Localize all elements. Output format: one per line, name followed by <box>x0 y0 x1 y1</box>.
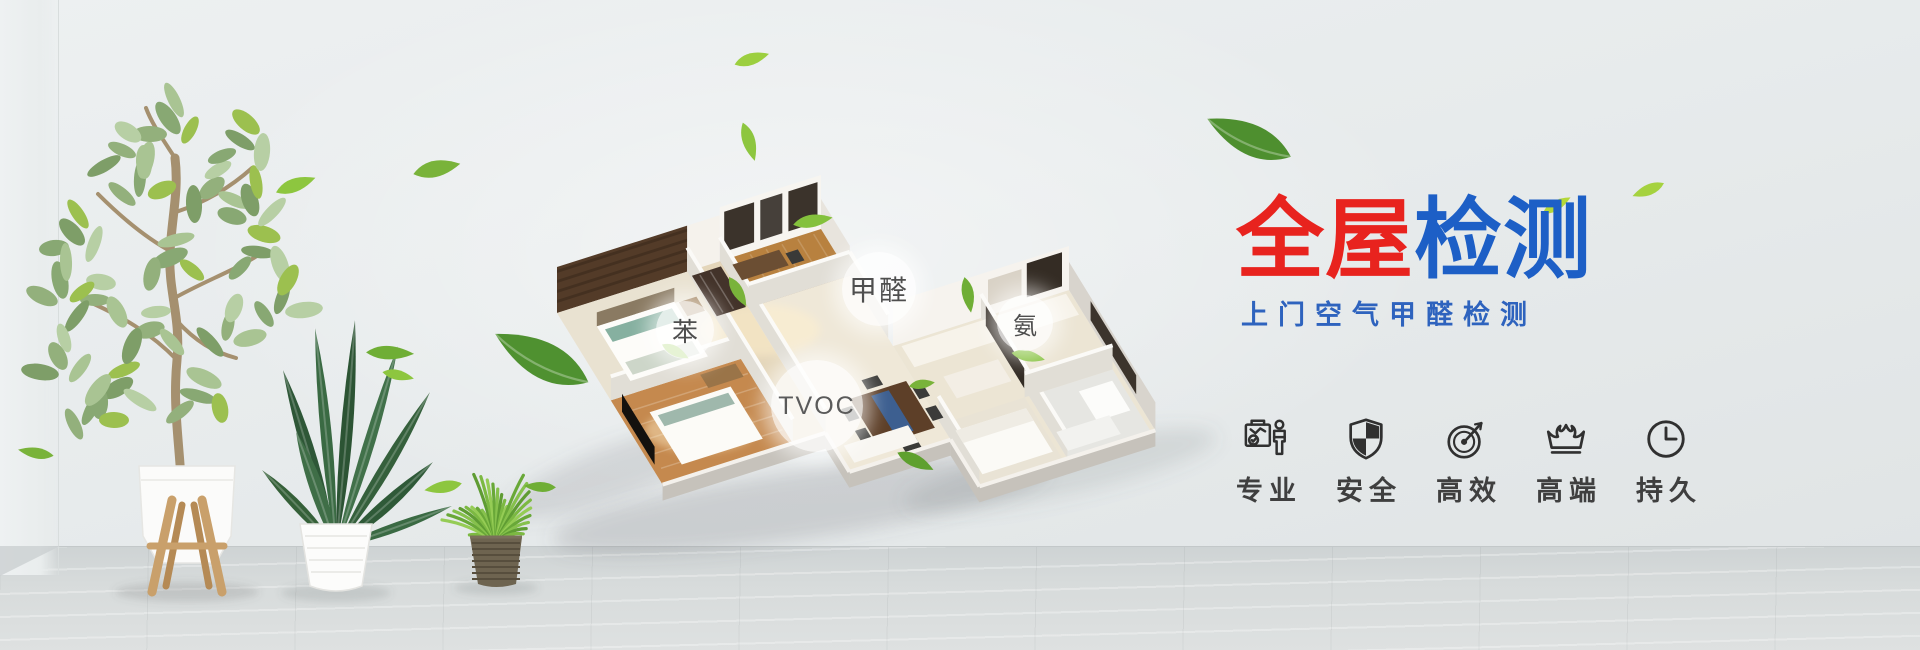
crown-icon <box>1543 416 1589 462</box>
gauge-icon <box>1443 416 1489 462</box>
pollutant-badge-ammonia: 氨 <box>997 295 1053 351</box>
clock-icon <box>1643 416 1689 462</box>
feature-efficiency: 高效 <box>1422 416 1510 508</box>
promo-banner: 苯 甲醛 氨 TVOC 全屋检测 上门空气甲醛检测 专业 <box>0 0 1920 650</box>
certificate-person-icon <box>1243 416 1289 462</box>
banner-title: 全屋检测 <box>1236 194 1592 286</box>
feature-lasting: 持久 <box>1622 416 1710 508</box>
feature-label: 专业 <box>1236 469 1302 508</box>
feature-premium: 高端 <box>1522 416 1610 508</box>
pollutant-badge-tvoc: TVOC <box>771 360 863 452</box>
feature-label: 持久 <box>1636 469 1702 508</box>
title-part-blue: 检测 <box>1414 188 1592 291</box>
feature-label: 高端 <box>1536 469 1602 508</box>
shield-icon <box>1343 416 1389 462</box>
scene-graphic <box>0 0 1920 650</box>
feature-safety: 安全 <box>1322 416 1410 508</box>
pollutant-badge-benzene: 苯 <box>656 301 714 359</box>
feature-professional: 专业 <box>1222 416 1310 508</box>
feature-label: 高效 <box>1436 469 1502 508</box>
banner-subtitle: 上门空气甲醛检测 <box>1241 293 1537 332</box>
feature-label: 安全 <box>1336 469 1402 508</box>
feature-row: 专业 安全 高效 高端 <box>1222 416 1710 508</box>
title-part-red: 全屋 <box>1236 188 1414 291</box>
pollutant-badge-formaldehyde: 甲醛 <box>842 252 916 326</box>
